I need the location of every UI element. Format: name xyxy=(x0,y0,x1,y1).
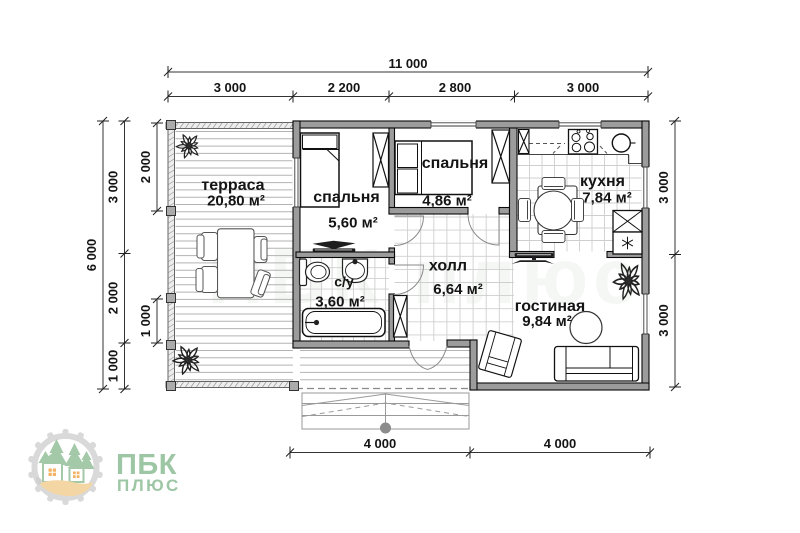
svg-text:3 000: 3 000 xyxy=(214,80,247,95)
svg-text:спальня: спальня xyxy=(422,155,488,172)
svg-text:2 000: 2 000 xyxy=(106,282,121,315)
svg-text:3,60 м²: 3,60 м² xyxy=(315,294,364,311)
svg-text:9,84 м²: 9,84 м² xyxy=(522,313,571,330)
svg-text:1 000: 1 000 xyxy=(106,350,121,383)
svg-text:4 000: 4 000 xyxy=(364,436,397,451)
svg-text:3 000: 3 000 xyxy=(656,304,671,337)
svg-text:6 000: 6 000 xyxy=(84,239,99,272)
svg-text:холл: холл xyxy=(429,258,467,275)
svg-text:3 000: 3 000 xyxy=(106,171,121,204)
svg-text:2 200: 2 200 xyxy=(328,80,361,95)
svg-text:2 800: 2 800 xyxy=(439,80,472,95)
svg-text:6,64 м²: 6,64 м² xyxy=(433,281,482,298)
svg-text:20,80 м²: 20,80 м² xyxy=(207,193,265,210)
svg-text:с/у: с/у xyxy=(334,274,354,290)
svg-text:7,84 м²: 7,84 м² xyxy=(582,190,631,207)
svg-text:11 000: 11 000 xyxy=(388,56,427,71)
svg-text:терраса: терраса xyxy=(201,177,264,194)
svg-text:1 000: 1 000 xyxy=(138,305,153,338)
svg-text:спальня: спальня xyxy=(313,189,379,206)
svg-text:2 000: 2 000 xyxy=(138,151,153,184)
svg-text:5,60 м²: 5,60 м² xyxy=(328,215,377,232)
svg-text:4 000: 4 000 xyxy=(544,436,577,451)
svg-text:ПЛЮС: ПЛЮС xyxy=(117,476,181,495)
svg-text:кухня: кухня xyxy=(580,173,625,190)
svg-text:3 000: 3 000 xyxy=(567,80,600,95)
svg-text:3 000: 3 000 xyxy=(656,171,671,204)
svg-text:4,86 м²: 4,86 м² xyxy=(422,193,471,210)
